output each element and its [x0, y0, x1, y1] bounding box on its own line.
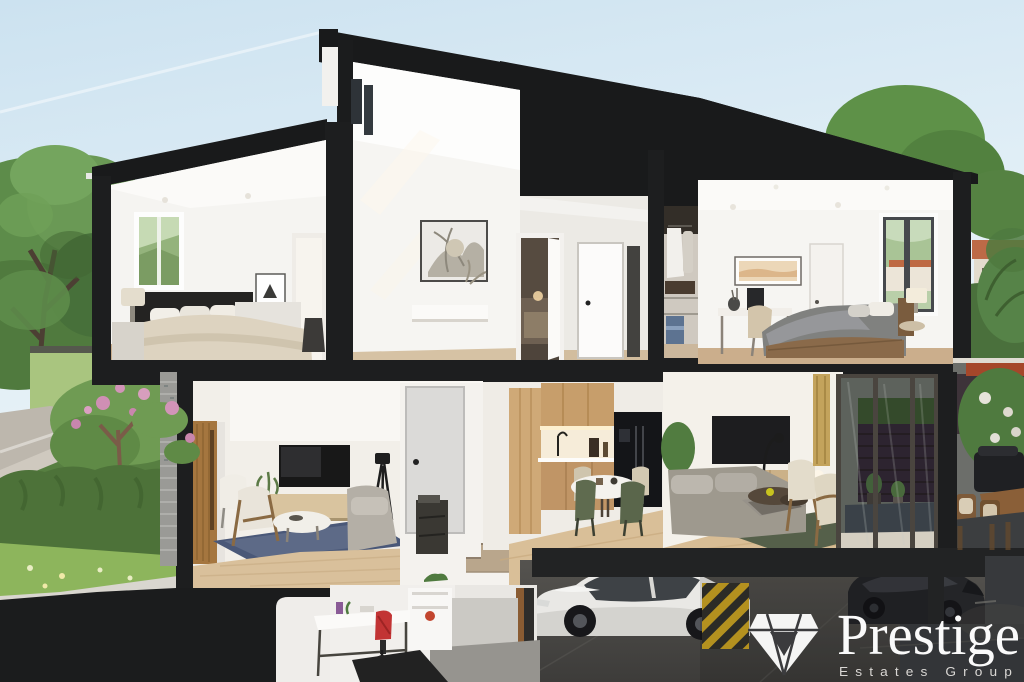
svg-text:Prestige: Prestige: [837, 602, 1020, 667]
svg-text:Estates Group: Estates Group: [839, 665, 1019, 679]
